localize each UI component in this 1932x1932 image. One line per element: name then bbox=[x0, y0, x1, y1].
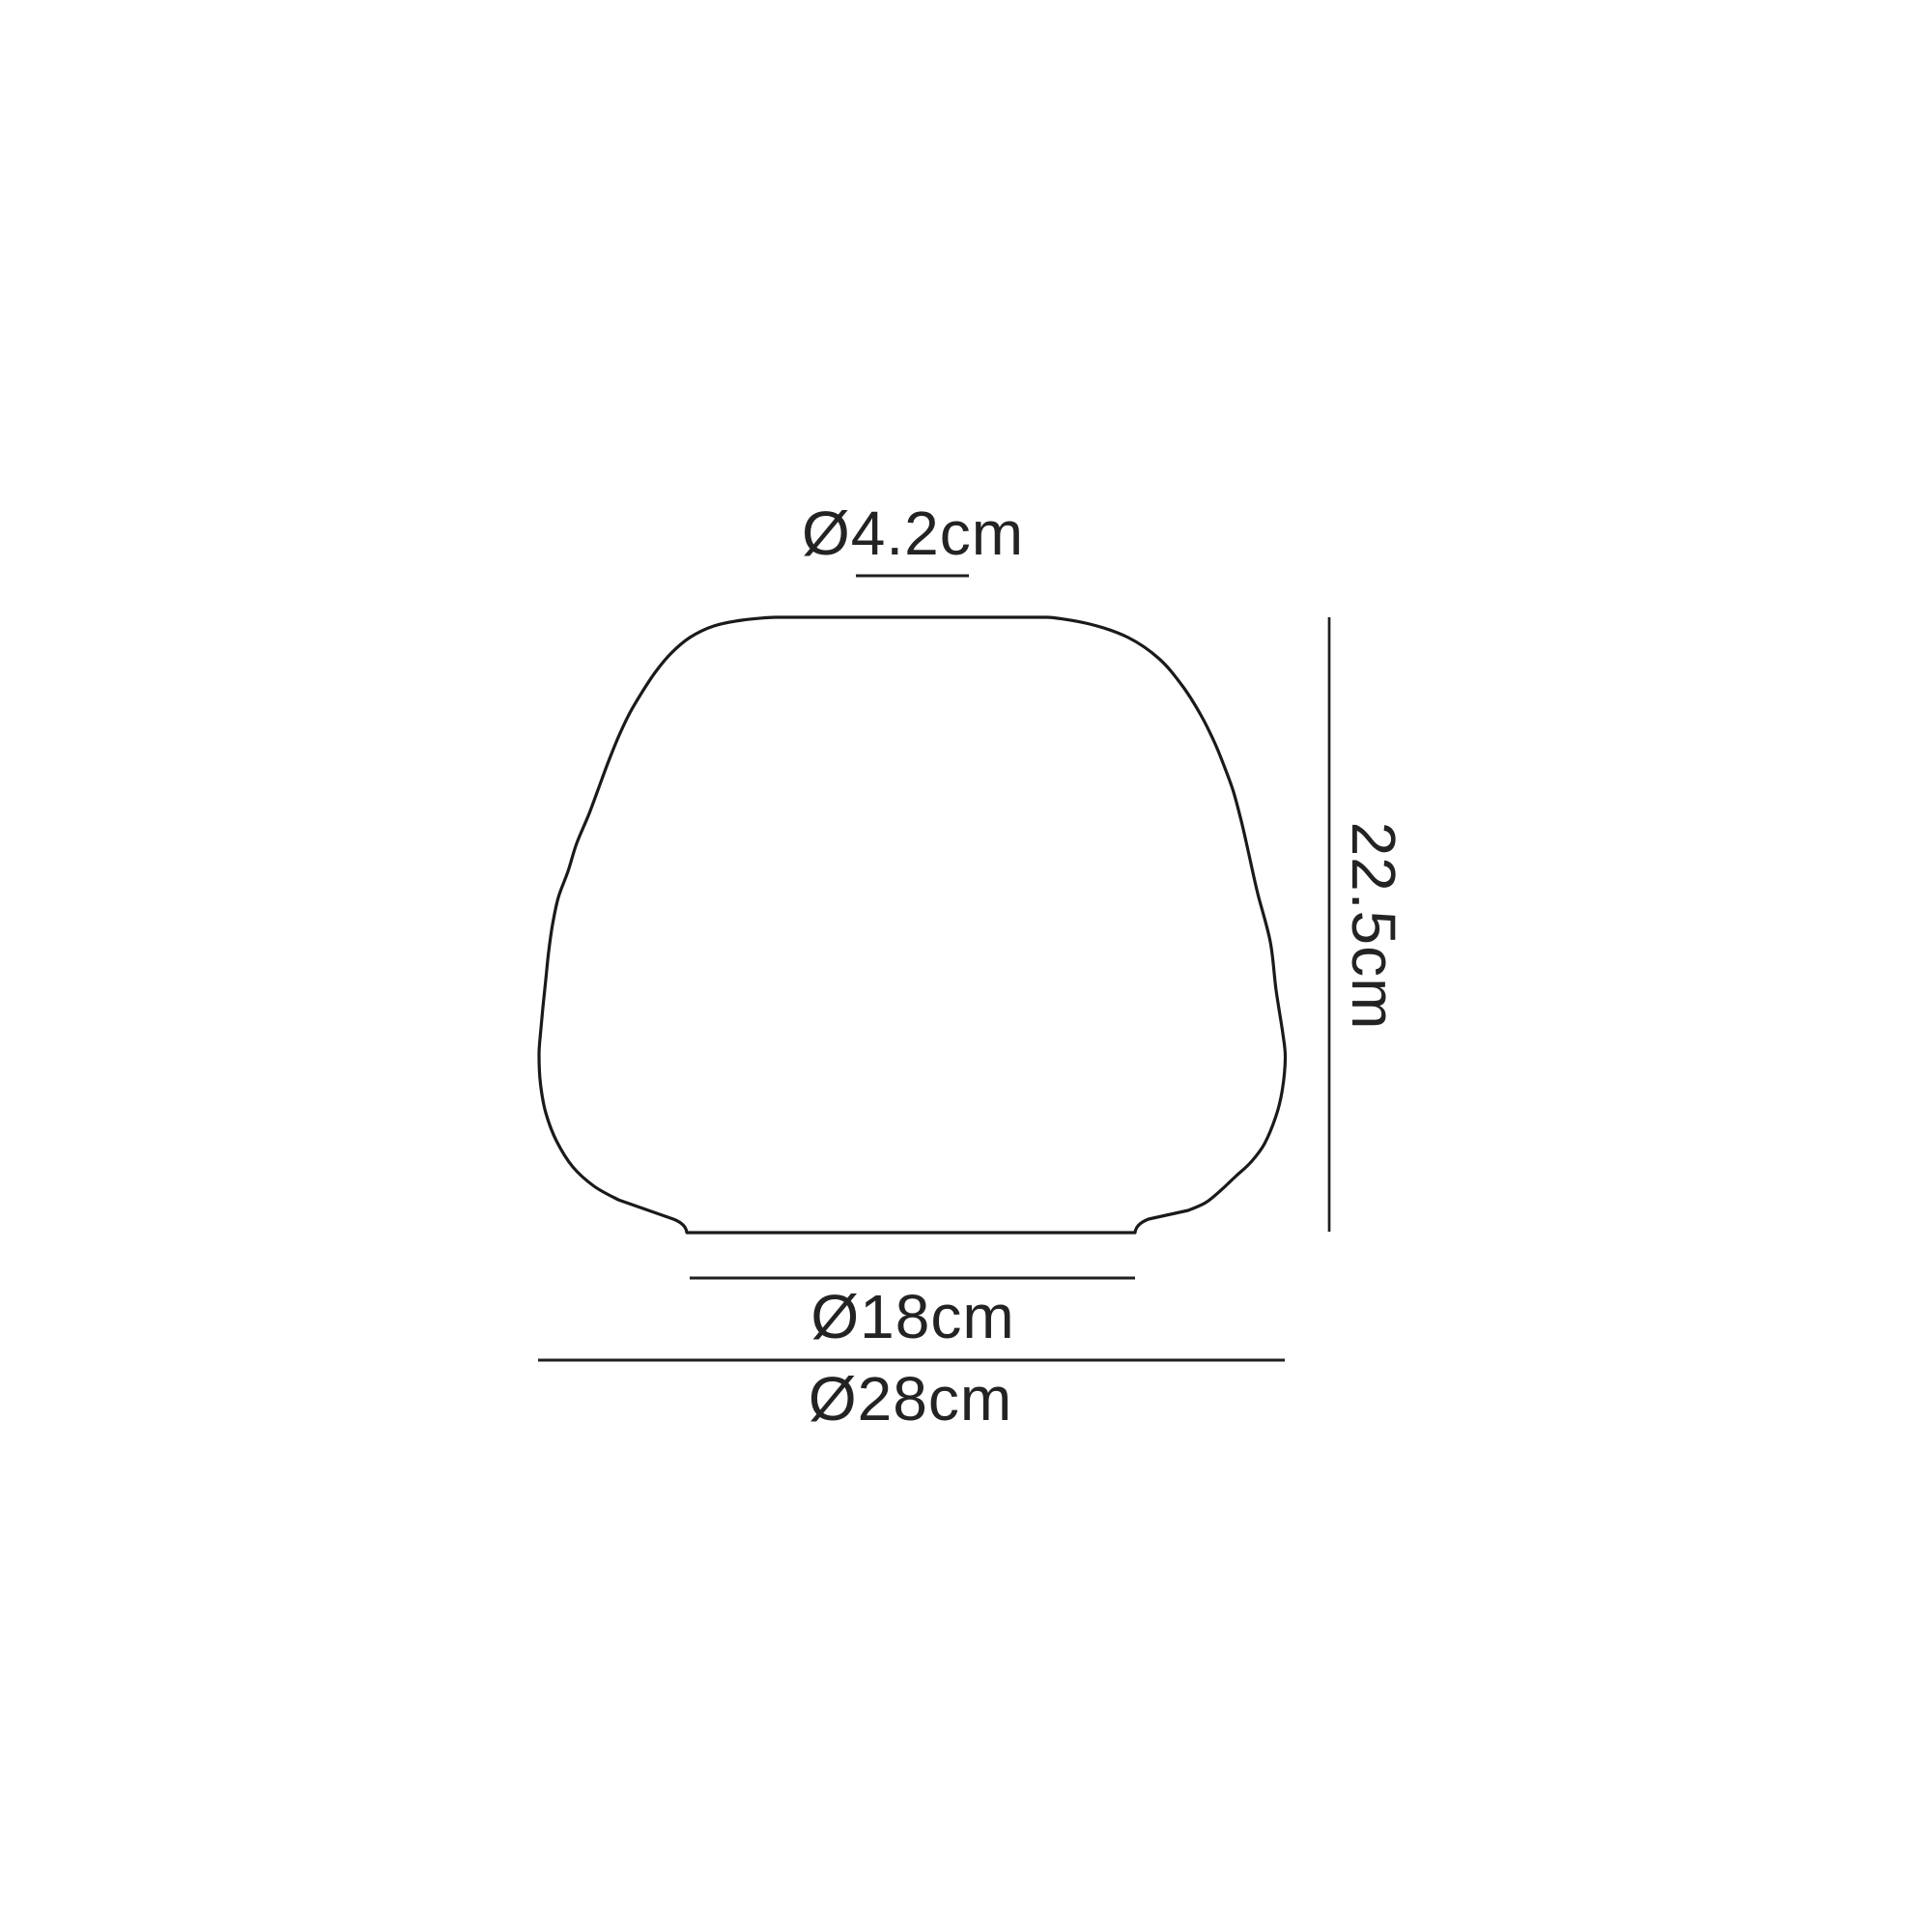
svg-text:Ø28cm: Ø28cm bbox=[809, 1364, 1012, 1434]
svg-text:Ø18cm: Ø18cm bbox=[810, 1282, 1014, 1351]
svg-text:22.5cm: 22.5cm bbox=[1339, 822, 1408, 1031]
svg-text:Ø4.2cm: Ø4.2cm bbox=[802, 498, 1024, 568]
